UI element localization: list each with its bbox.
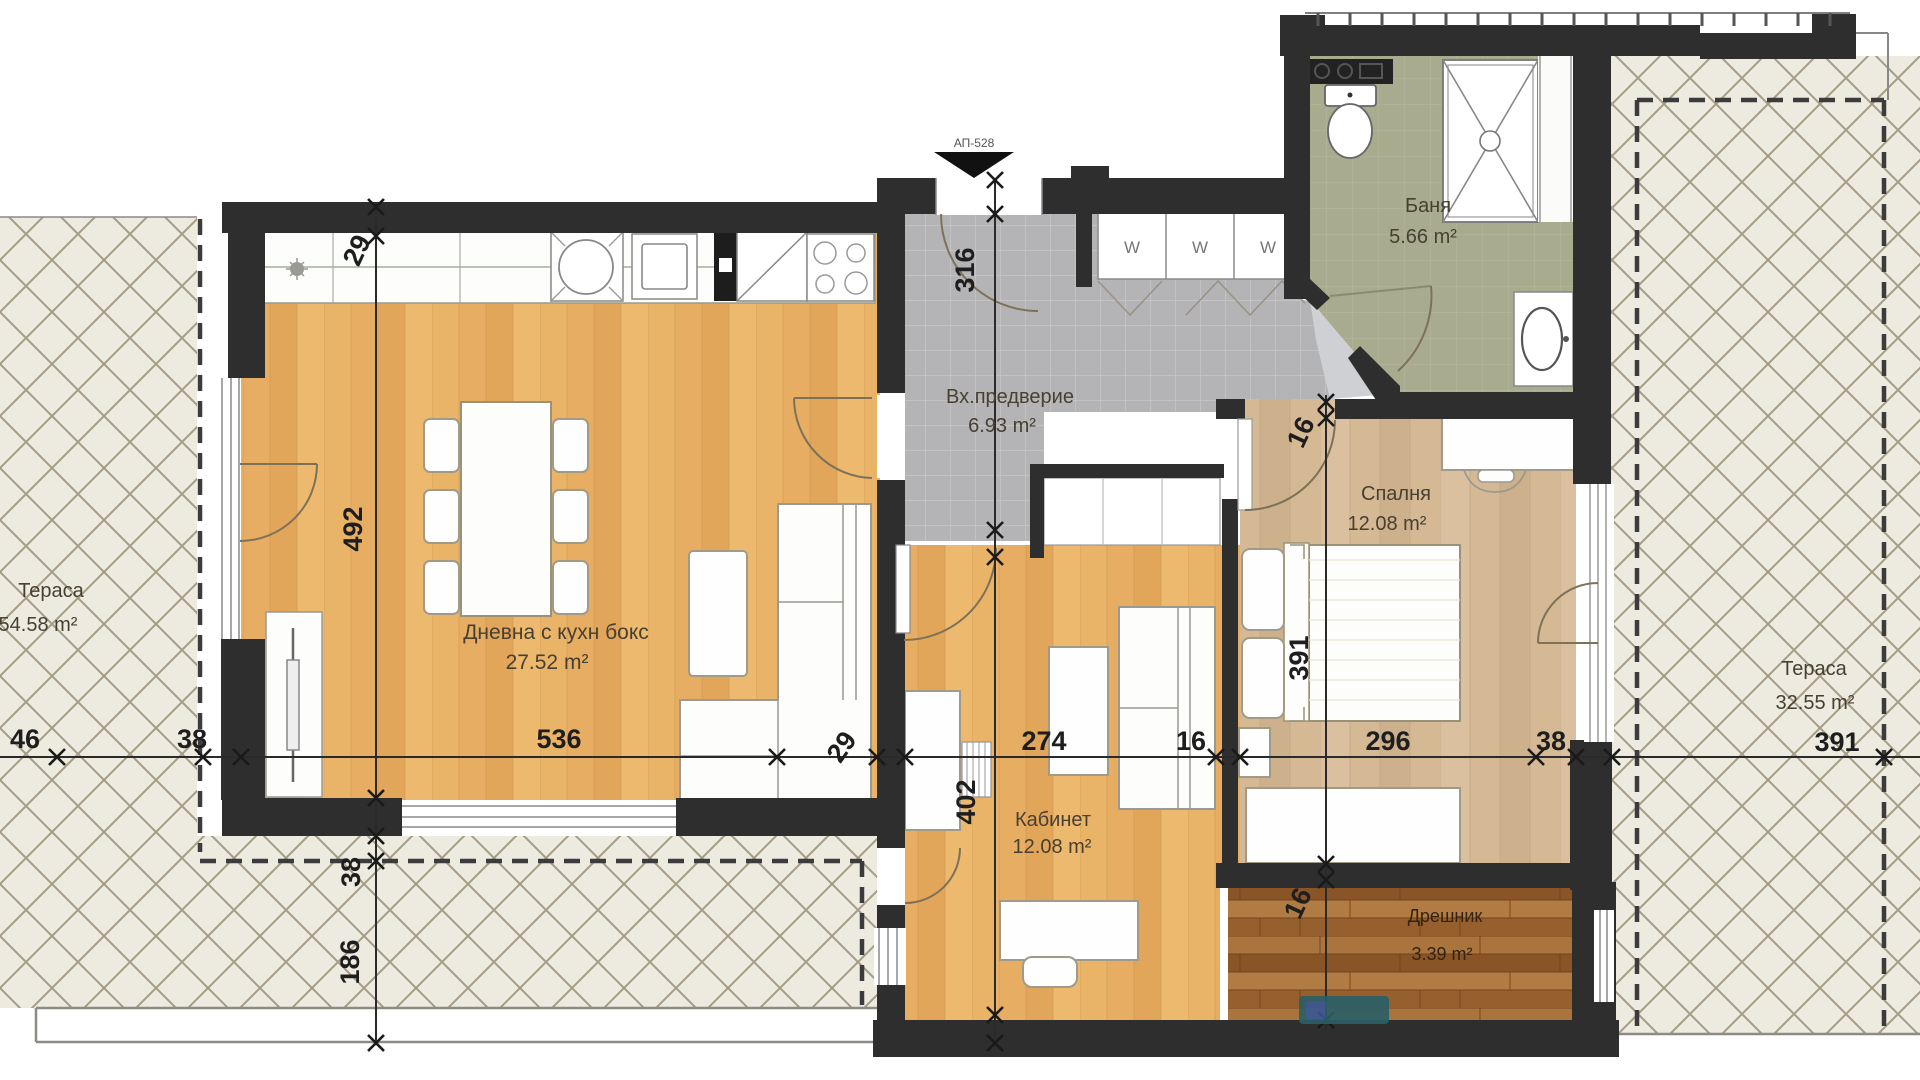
svg-text:Вх.предверие: Вх.предверие [946,386,1074,408]
svg-text:Дрешник: Дрешник [1408,906,1483,926]
svg-text:391: 391 [1284,635,1314,680]
svg-text:391: 391 [1814,727,1859,757]
svg-text:316: 316 [950,247,980,292]
svg-text:186: 186 [335,939,365,984]
svg-text:38: 38 [336,857,366,887]
svg-text:Тераса: Тераса [1781,658,1847,680]
svg-text:5.66 m²: 5.66 m² [1389,226,1457,248]
svg-text:12.08 m²: 12.08 m² [1348,513,1427,535]
svg-text:3.39 m²: 3.39 m² [1411,944,1472,964]
svg-text:16: 16 [1176,726,1206,756]
svg-text:38: 38 [177,724,207,754]
svg-text:46: 46 [10,724,40,754]
svg-text:Дневна с кухн бокс: Дневна с кухн бокс [463,621,649,644]
svg-text:Тераса: Тераса [18,580,84,602]
svg-text:Кабинет: Кабинет [1015,809,1091,831]
svg-text:6.93 m²: 6.93 m² [968,415,1036,437]
svg-text:27.52 m²: 27.52 m² [506,651,589,674]
svg-text:W: W [1192,238,1208,257]
svg-text:W: W [1260,238,1276,257]
svg-text:38: 38 [1536,726,1566,756]
svg-text:АП-528: АП-528 [954,136,995,150]
svg-text:54.58 m²: 54.58 m² [0,614,78,636]
svg-text:274: 274 [1021,726,1066,756]
svg-text:402: 402 [951,779,981,824]
svg-text:492: 492 [338,506,368,551]
svg-text:296: 296 [1365,726,1410,756]
svg-text:12.08 m²: 12.08 m² [1013,836,1092,858]
svg-text:32.55 m²: 32.55 m² [1776,692,1855,714]
svg-text:W: W [1124,238,1140,257]
svg-text:Баня: Баня [1405,195,1451,217]
svg-text:Спалня: Спалня [1361,483,1431,505]
svg-text:536: 536 [536,724,581,754]
